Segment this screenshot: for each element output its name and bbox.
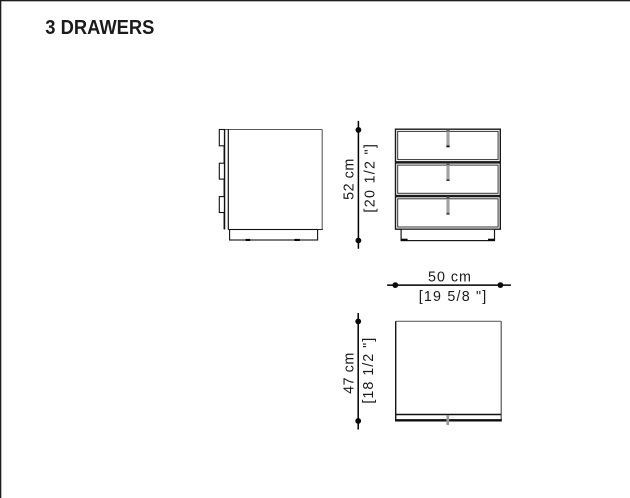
svg-text:50 cm: 50 cm	[428, 270, 472, 286]
svg-text:52 cm: 52 cm	[341, 158, 357, 200]
svg-text:[18 1/2 "]: [18 1/2 "]	[361, 337, 377, 404]
svg-text:[19 5/8 "]: [19 5/8 "]	[419, 289, 488, 305]
svg-text:47 cm: 47 cm	[341, 352, 357, 394]
svg-text:[20 1/2 "]: [20 1/2 "]	[363, 143, 379, 213]
svg-text:3 DRAWERS: 3 DRAWERS	[45, 16, 154, 39]
